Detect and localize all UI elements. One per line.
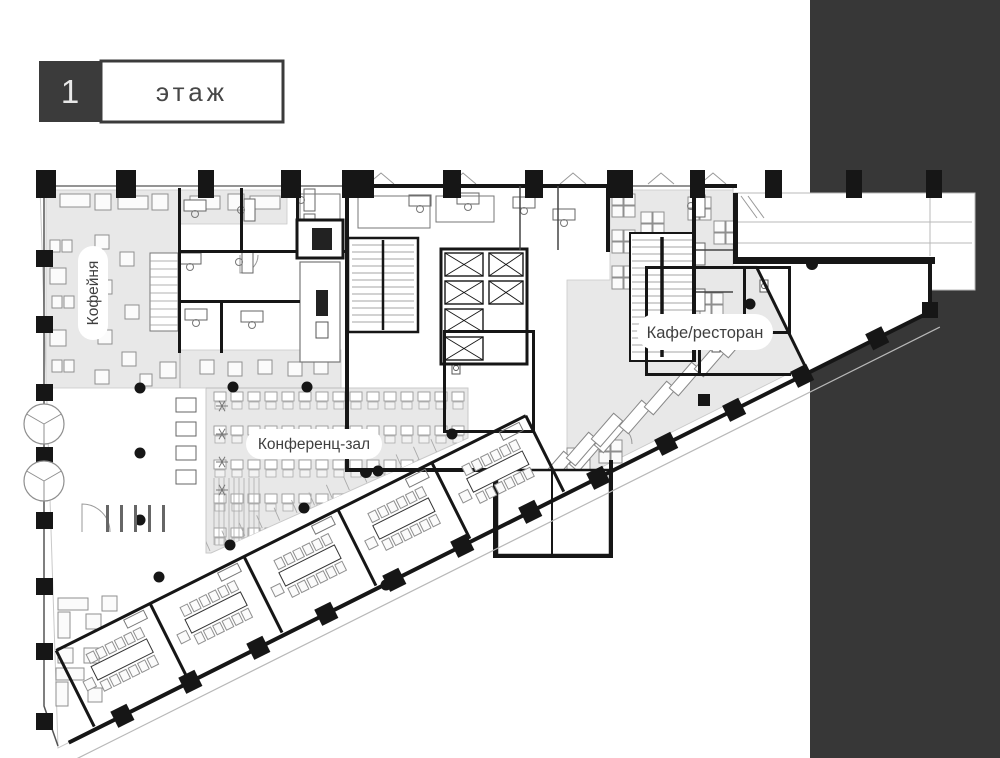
floor-word: этаж (156, 77, 228, 107)
floor-plan-page: Кофейня Кафе/ресторан Конференц-зал 1 эт… (0, 0, 1000, 758)
floor-badge: 1 этаж (39, 61, 283, 122)
floor-number: 1 (61, 73, 79, 110)
coffee-label-text: Кофейня (85, 261, 102, 326)
zone-label-coffee: Кофейня (78, 246, 108, 340)
cafe-label-text: Кафе/ресторан (647, 324, 764, 342)
side-panel (810, 0, 1000, 758)
zone-label-cafe: Кафе/ресторан (637, 314, 773, 350)
conference-label-text: Конференц-зал (258, 436, 370, 453)
floor-plan-drawing: Кофейня Кафе/ресторан Конференц-зал 1 эт… (0, 0, 1000, 758)
zone-label-conference: Конференц-зал (246, 429, 382, 459)
